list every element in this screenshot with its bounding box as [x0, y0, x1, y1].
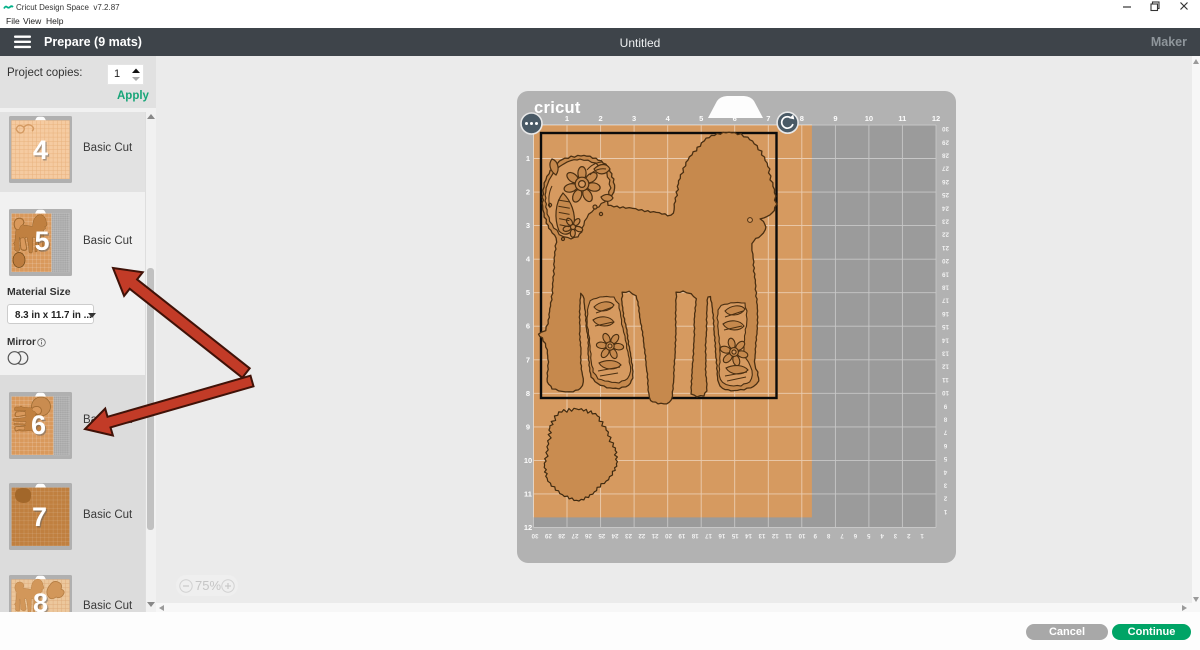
- svg-text:2: 2: [907, 532, 911, 539]
- svg-text:7: 7: [526, 355, 530, 364]
- svg-text:24: 24: [611, 532, 618, 539]
- svg-text:29: 29: [942, 138, 949, 145]
- svg-text:12: 12: [942, 363, 949, 370]
- svg-text:21: 21: [651, 532, 658, 539]
- svg-text:3: 3: [632, 114, 636, 123]
- svg-text:5: 5: [867, 532, 871, 539]
- svg-text:2: 2: [526, 188, 530, 197]
- svg-text:20: 20: [942, 257, 949, 264]
- svg-text:7: 7: [943, 429, 947, 436]
- svg-text:24: 24: [942, 204, 949, 211]
- svg-text:23: 23: [625, 532, 632, 539]
- svg-text:2: 2: [599, 114, 603, 123]
- svg-text:27: 27: [571, 532, 578, 539]
- svg-text:10: 10: [865, 114, 873, 123]
- svg-text:12: 12: [524, 523, 532, 532]
- svg-text:22: 22: [942, 231, 949, 238]
- svg-text:6: 6: [526, 322, 530, 331]
- svg-text:1: 1: [526, 154, 530, 163]
- svg-text:18: 18: [942, 284, 949, 291]
- svg-text:3: 3: [526, 221, 530, 230]
- svg-text:22: 22: [638, 532, 645, 539]
- svg-text:1: 1: [565, 114, 569, 123]
- svg-text:9: 9: [943, 402, 947, 409]
- svg-text:11: 11: [524, 489, 532, 498]
- svg-text:9: 9: [813, 532, 817, 539]
- svg-text:18: 18: [691, 532, 698, 539]
- svg-text:19: 19: [678, 532, 685, 539]
- svg-text:17: 17: [942, 297, 949, 304]
- svg-text:1: 1: [943, 508, 947, 515]
- svg-text:20: 20: [665, 532, 672, 539]
- svg-text:16: 16: [718, 532, 725, 539]
- svg-text:11: 11: [898, 114, 906, 123]
- svg-text:13: 13: [758, 532, 765, 539]
- svg-text:9: 9: [526, 422, 530, 431]
- svg-text:11: 11: [942, 376, 949, 383]
- svg-text:14: 14: [942, 336, 949, 343]
- svg-text:8: 8: [943, 416, 947, 423]
- svg-text:14: 14: [745, 532, 752, 539]
- svg-text:17: 17: [705, 532, 712, 539]
- svg-text:8: 8: [826, 532, 830, 539]
- svg-text:21: 21: [942, 244, 949, 251]
- svg-text:23: 23: [942, 218, 949, 225]
- svg-text:3: 3: [943, 482, 947, 489]
- svg-text:10: 10: [798, 532, 805, 539]
- svg-text:12: 12: [932, 114, 940, 123]
- svg-text:7: 7: [766, 114, 770, 123]
- svg-text:27: 27: [942, 165, 949, 172]
- svg-text:15: 15: [731, 532, 738, 539]
- svg-text:6: 6: [943, 442, 947, 449]
- svg-text:15: 15: [942, 323, 949, 330]
- svg-text:30: 30: [531, 532, 538, 539]
- svg-text:5: 5: [34, 226, 49, 256]
- svg-text:6: 6: [853, 532, 857, 539]
- svg-text:28: 28: [942, 152, 949, 159]
- svg-text:12: 12: [771, 532, 778, 539]
- svg-text:11: 11: [785, 532, 792, 539]
- svg-text:29: 29: [544, 532, 551, 539]
- svg-text:9: 9: [833, 114, 837, 123]
- svg-text:3: 3: [893, 532, 897, 539]
- svg-text:7: 7: [840, 532, 844, 539]
- svg-text:8: 8: [526, 389, 530, 398]
- svg-text:7: 7: [32, 502, 47, 532]
- svg-text:19: 19: [942, 270, 949, 277]
- svg-text:cricut: cricut: [534, 99, 581, 117]
- svg-text:13: 13: [942, 350, 949, 357]
- svg-text:8: 8: [800, 114, 804, 123]
- svg-text:25: 25: [942, 191, 949, 198]
- svg-text:26: 26: [584, 532, 591, 539]
- svg-text:6: 6: [31, 410, 46, 440]
- svg-text:25: 25: [598, 532, 605, 539]
- svg-text:5: 5: [526, 288, 530, 297]
- svg-text:10: 10: [524, 456, 532, 465]
- svg-text:10: 10: [942, 389, 949, 396]
- svg-text:4: 4: [880, 532, 884, 539]
- svg-text:4: 4: [943, 468, 947, 475]
- svg-text:5: 5: [943, 455, 947, 462]
- svg-text:2: 2: [943, 495, 947, 502]
- svg-text:4: 4: [33, 135, 48, 165]
- svg-text:5: 5: [699, 114, 703, 123]
- svg-text:1: 1: [920, 532, 924, 539]
- svg-text:28: 28: [558, 532, 565, 539]
- svg-text:16: 16: [942, 310, 949, 317]
- svg-text:26: 26: [942, 178, 949, 185]
- svg-text:30: 30: [942, 125, 949, 132]
